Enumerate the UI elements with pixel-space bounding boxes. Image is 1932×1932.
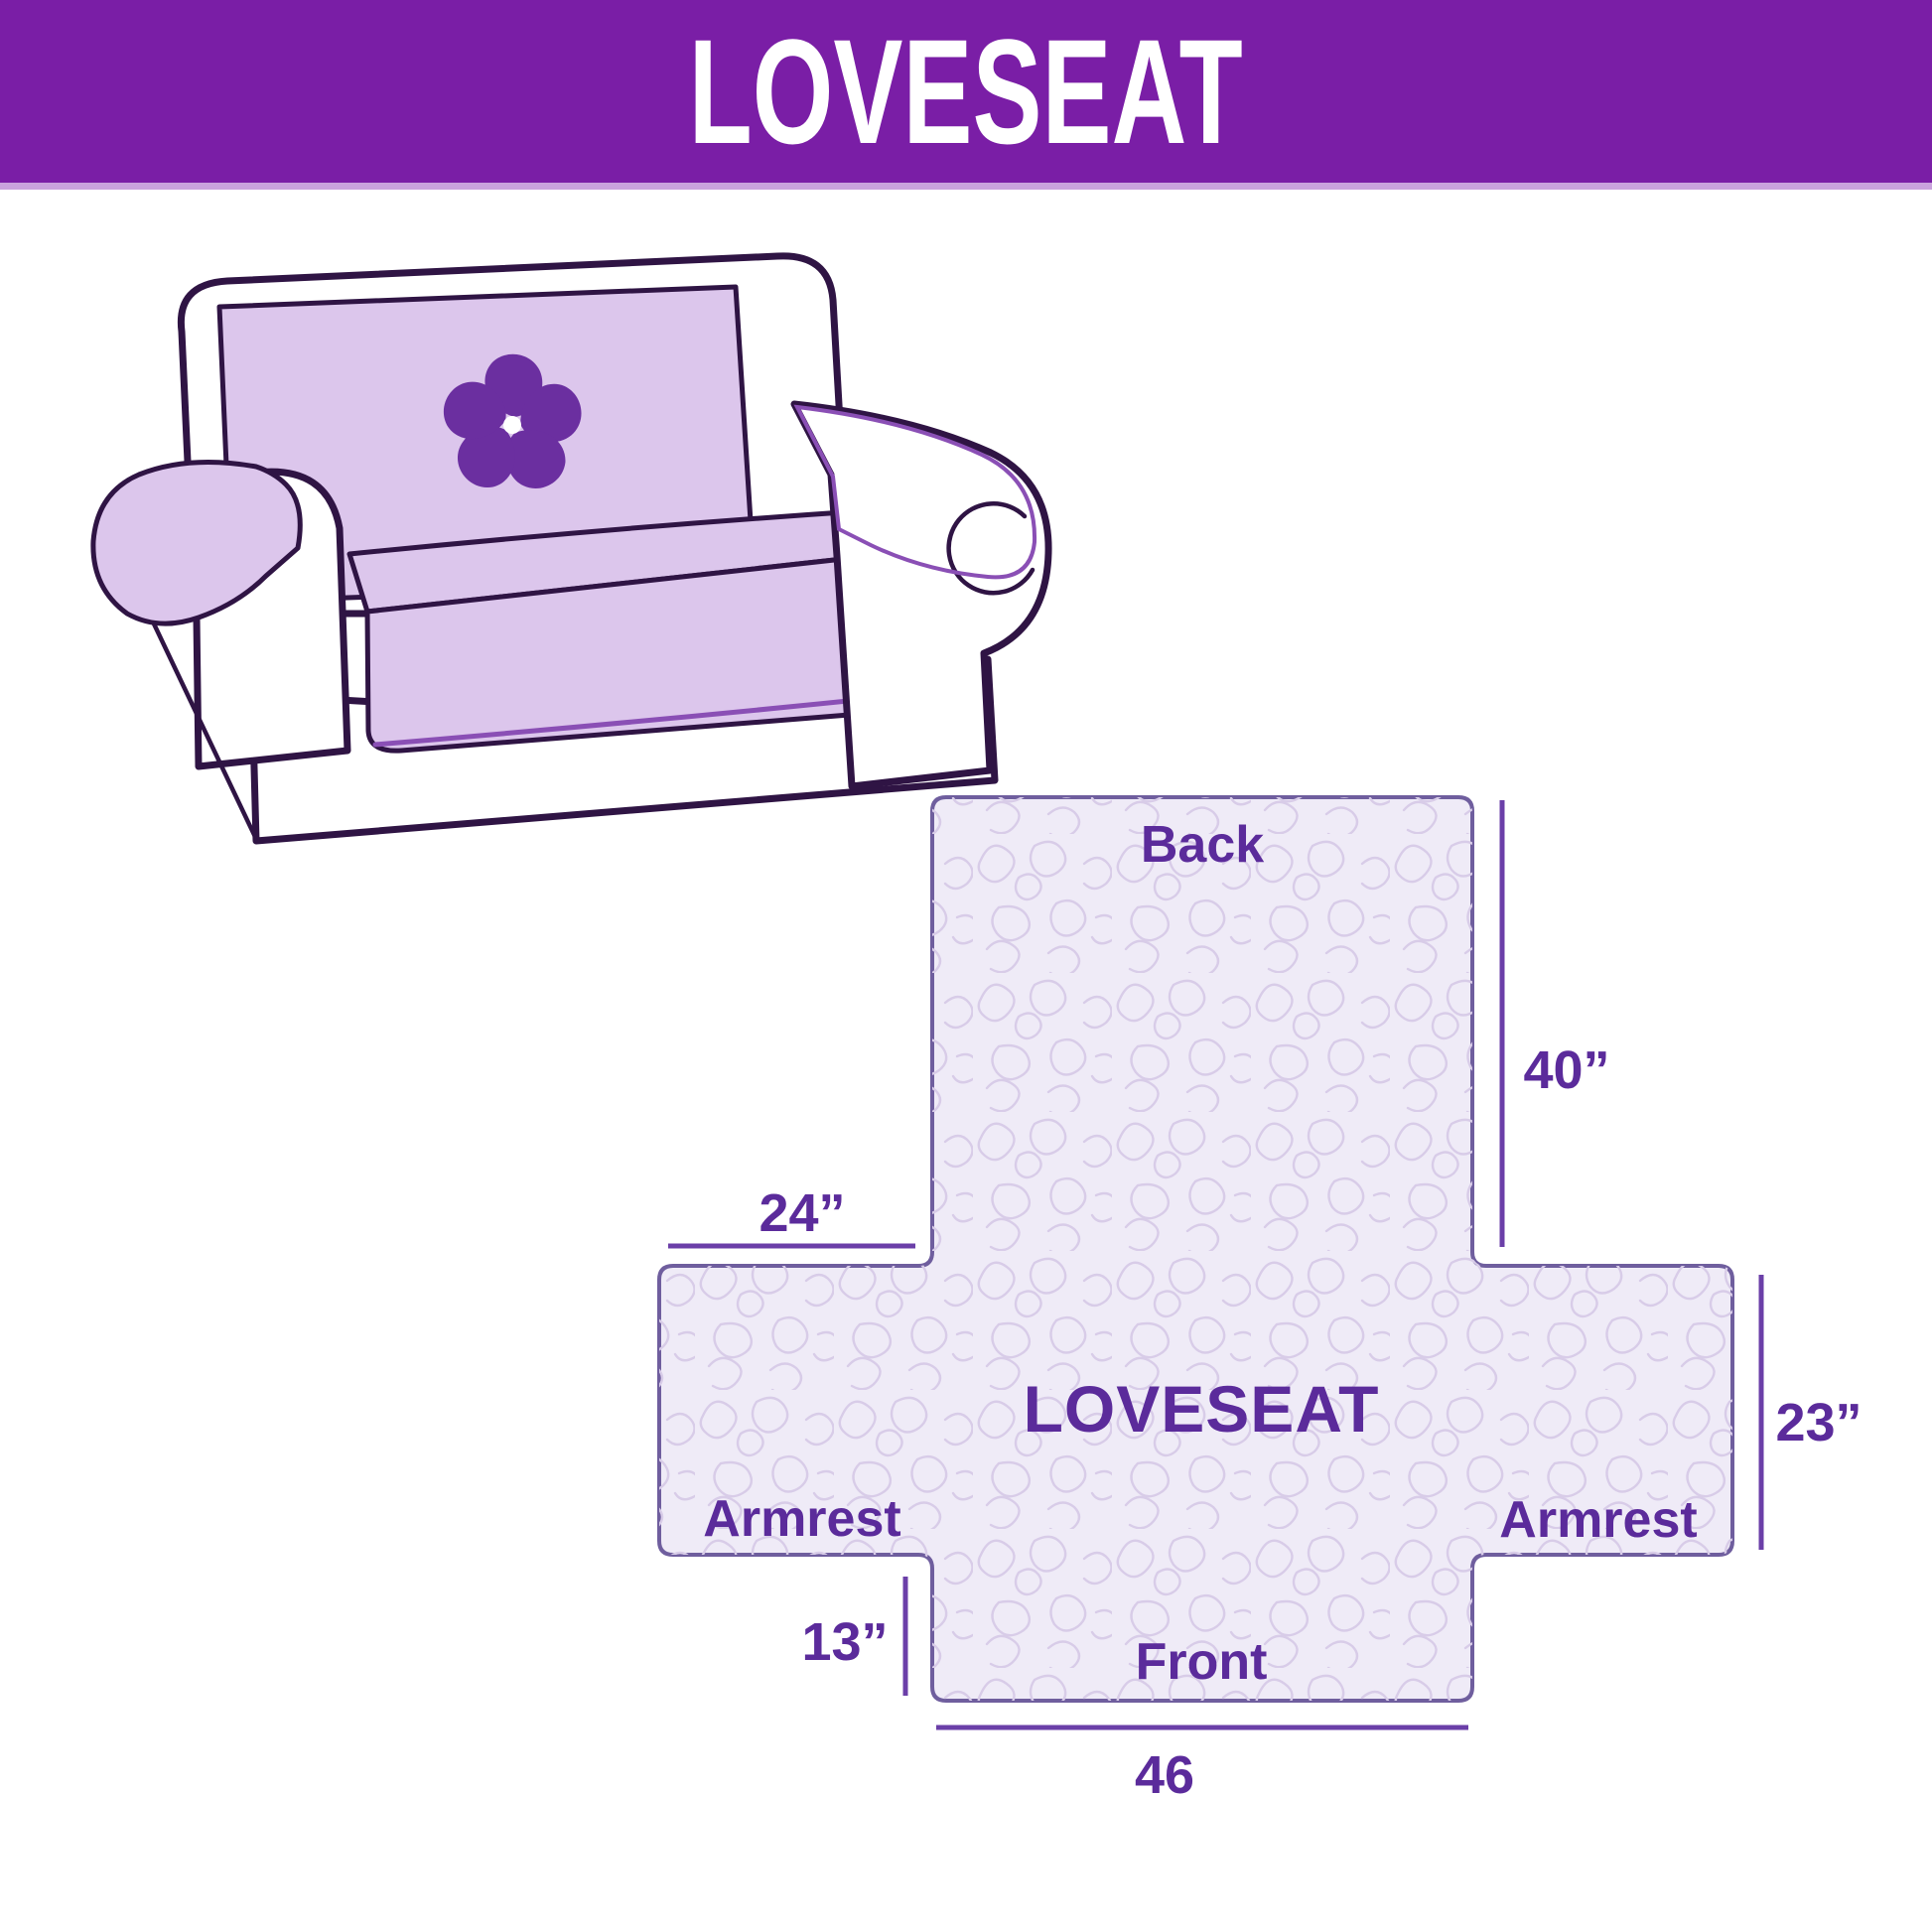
banner-underline	[0, 183, 1932, 190]
title-banner: LOVESEAT	[0, 0, 1932, 183]
diagram-center-label: LOVESEAT	[1024, 1372, 1380, 1446]
dim-label-armrest-top-width: 24”	[759, 1183, 845, 1243]
back-section-label: Back	[1141, 816, 1264, 874]
page-title: LOVESEAT	[689, 6, 1243, 178]
cover-layout-diagram: Back LOVESEAT Armrest Armrest Front 24” …	[596, 755, 1932, 1932]
dim-label-front-width: 46	[1135, 1745, 1194, 1805]
dim-label-front-skirt-drop: 13”	[801, 1612, 888, 1672]
cover-cross-texture	[659, 797, 1732, 1701]
front-section-label: Front	[1136, 1633, 1268, 1691]
armrest-left-label: Armrest	[703, 1490, 900, 1548]
dim-label-back-height: 40”	[1523, 1040, 1609, 1100]
dim-label-armrest-side-height: 23”	[1775, 1393, 1862, 1452]
armrest-right-label: Armrest	[1499, 1491, 1697, 1549]
